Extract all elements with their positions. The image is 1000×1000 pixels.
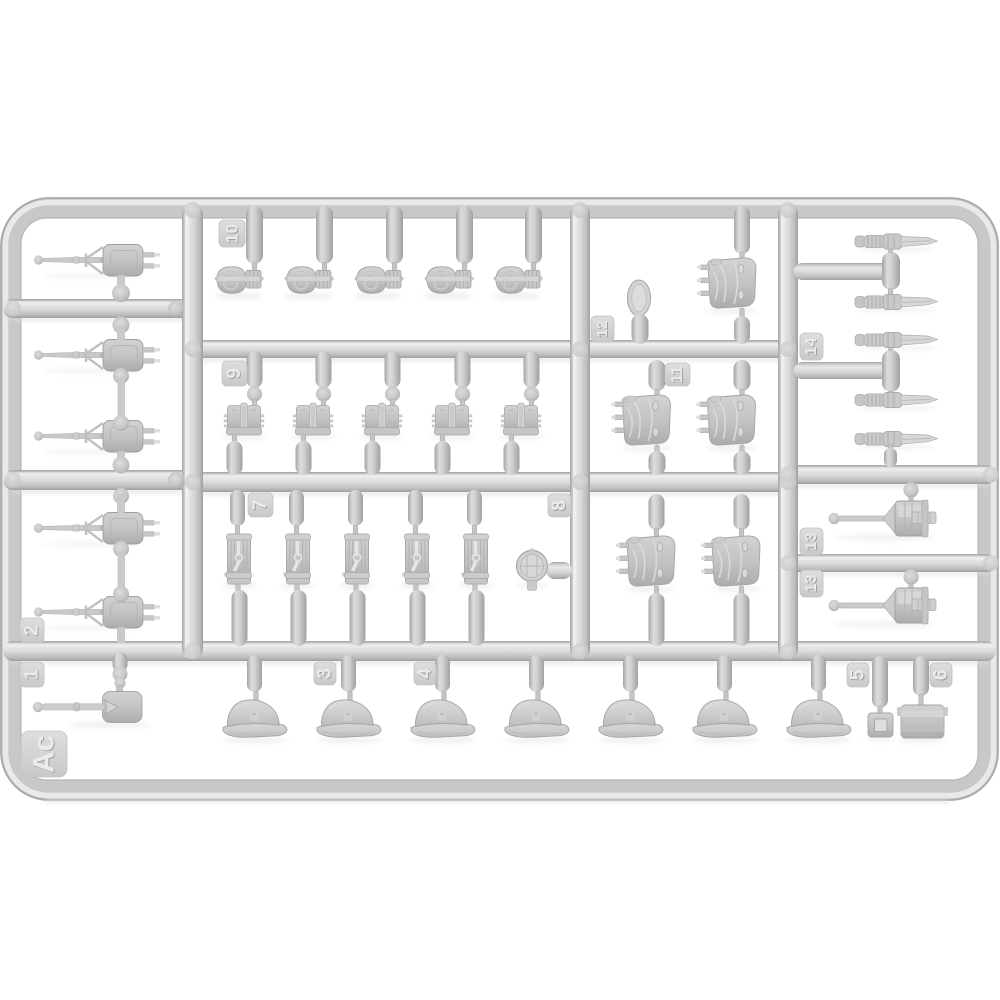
svg-text:14: 14 — [803, 338, 820, 356]
svg-text:13: 13 — [803, 533, 820, 551]
svg-text:6: 6 — [931, 670, 952, 681]
svg-text:1: 1 — [22, 669, 43, 680]
svg-text:4: 4 — [415, 668, 436, 679]
svg-text:12: 12 — [594, 321, 611, 338]
svg-text:10: 10 — [223, 224, 242, 243]
svg-text:3: 3 — [315, 668, 336, 679]
svg-text:2: 2 — [22, 625, 43, 636]
svg-text:8: 8 — [549, 500, 570, 511]
svg-text:Ac: Ac — [28, 735, 61, 773]
svg-text:13: 13 — [803, 575, 820, 593]
svg-text:11: 11 — [669, 366, 686, 383]
svg-text:5: 5 — [848, 669, 869, 680]
svg-text:9: 9 — [224, 368, 245, 379]
svg-text:7: 7 — [250, 500, 271, 511]
